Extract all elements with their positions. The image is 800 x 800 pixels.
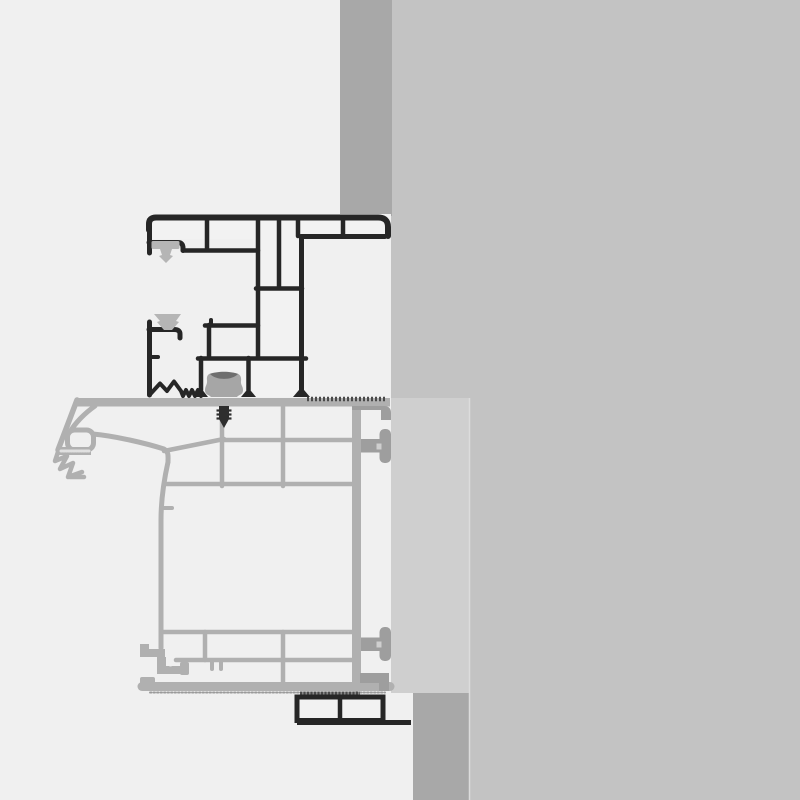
wall-band-bottom [413,693,469,800]
background-notch-bottom [391,693,413,800]
groove-foot [140,677,155,687]
technical-drawing-canvas [0,0,800,800]
wall-band-top [340,0,392,216]
anchor-notch [377,642,382,648]
groove-nub [180,662,189,675]
groove-notch [168,661,174,667]
anchor-notch [377,444,382,450]
sash-top-bar [75,398,390,407]
insulation-panel [391,398,470,693]
gasket-upper-bar [152,241,180,249]
cross-section-diagram [0,0,800,800]
